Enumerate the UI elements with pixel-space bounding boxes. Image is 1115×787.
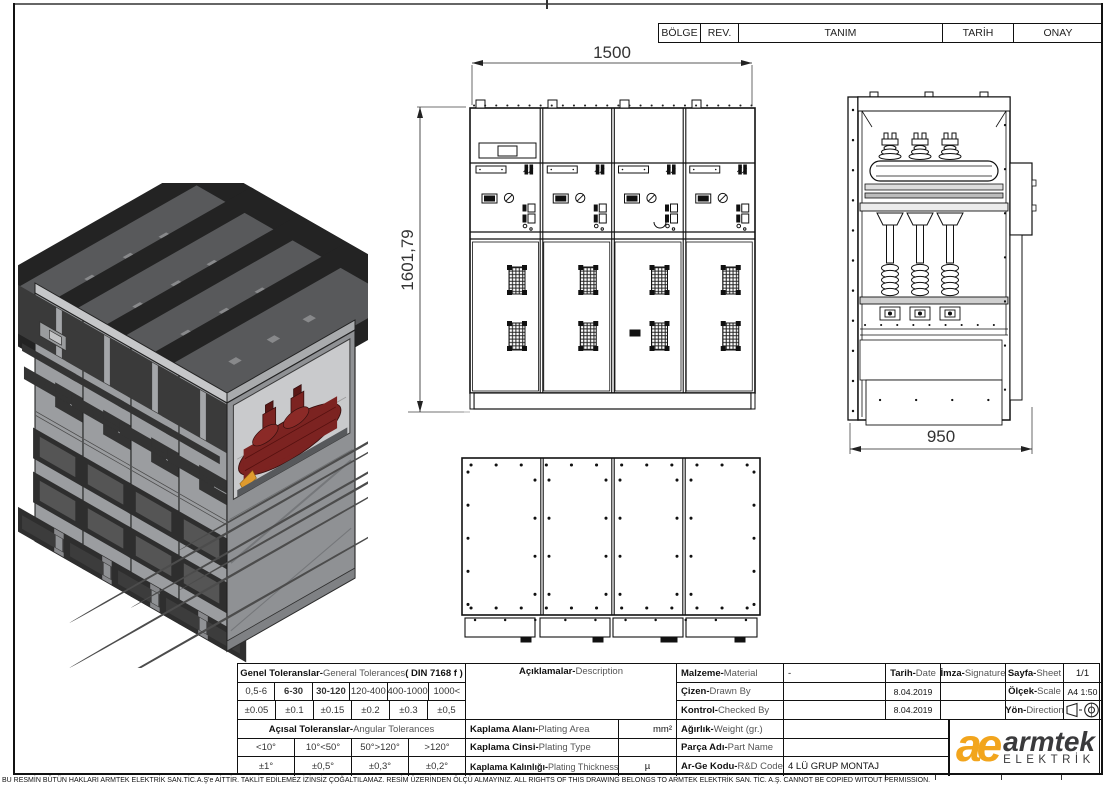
angular-tolerances-header: Açısal Toleranslar-Angular Tolerances [238,720,466,739]
plan-body [462,458,760,642]
date-label: Tarih-Date [886,664,941,683]
title-block: Genel Toleranslar-General Tolerances ( D… [237,663,1100,775]
front-width-value: 1500 [593,45,631,62]
plating-area-unit: mm² [619,720,677,739]
sheet-label: Sayfa-Sheet [1006,664,1064,683]
direction-label: Yön-Direction [1006,701,1064,720]
projection-symbol-icon [1066,702,1100,718]
plating-thickness-label: Kaplama Kalınlığı-Plating Thickness [466,757,619,776]
checked-by-label: Kontrol-Checked By [677,701,784,720]
angular-tolerance-ranges: <10° 10°<50° 50°>120° >120° [238,739,466,757]
general-tolerance-ranges: 0,5-6 6-30 30-120 120-400 400-1000 1000< [238,683,466,701]
weight-value [784,720,949,739]
armtek-logo-mark: ae [956,725,997,765]
checked-signature [941,701,1006,720]
dimension-front-width [472,60,752,105]
dimension-front-height [408,107,470,412]
scale-value: A4 1:50 [1064,683,1101,701]
material-label: Malzeme-Material [677,664,784,683]
plating-area-label: Kaplama Alanı-Plating Area [466,720,619,739]
drawn-date: 8.04.2019 [886,683,941,701]
rd-code-label: Ar-Ge Kodu-R&D Code [677,757,784,776]
isometric-view [18,183,368,668]
material-value: - [784,664,886,683]
drawn-by-value [784,683,886,701]
revision-col-tarih: TARİH [943,24,1014,42]
frame-top [14,3,1103,5]
armtek-logo-name: armtek [1003,730,1095,754]
drawn-by-label: Çizen-Drawn By [677,683,784,701]
plan-view [455,450,767,650]
front-height-value: 1601,79 [400,229,417,290]
weight-label: Ağırlık- Weight (gr.) [677,720,784,739]
frame-right [1101,3,1103,775]
revision-col-onay: ONAY [1014,24,1102,42]
part-name-label: Parça Adı-Part Name [677,739,784,757]
revision-col-bolge: BÖLGE [659,24,701,42]
front-display-panel [479,143,536,158]
copyright-notice: BU RESMİN BÜTÜN HAKLARI ARMTEK ELEKTRİK … [2,777,1114,784]
checked-by-value [784,701,886,720]
part-name-value [784,739,949,757]
plating-type-value [619,739,677,757]
revision-col-tanim: TANIM [739,24,943,42]
checked-date: 8.04.2019 [886,701,941,720]
description-block: Açıklamalar-Description [466,664,677,720]
front-view: 1500 1601,79 [400,45,770,425]
armtek-logo-sub: ELEKTRİK [1003,754,1095,767]
sheet-value: 1/1 [1064,664,1101,683]
angular-tolerance-values: ±1° ±0,5° ±0,3° ±0,2° [238,757,466,776]
side-cabinet [848,92,1036,425]
revision-table: BÖLGE REV. TANIM TARİH ONAY [658,23,1103,43]
signature-label: İmza-Signature [941,664,1006,683]
drawing-sheet: BÖLGE REV. TANIM TARİH ONAY [0,0,1115,787]
general-tolerances-header: Genel Toleranslar-General Tolerances ( D… [238,664,466,683]
general-tolerance-values: ±0.05 ±0.1 ±0.15 ±0.2 ±0.3 ±0,5 [238,701,466,720]
rd-code-value: 4 LÜ GRUP MONTAJ [784,757,949,776]
plating-type-label: Kaplama Cinsi-Plating Type [466,739,619,757]
company-logo: ae armtek ELEKTRİK [949,720,1101,776]
door-latch-mark [630,330,640,336]
side-depth-value: 950 [927,427,955,446]
frame-center-mark [546,0,548,9]
drawn-signature [941,683,1006,701]
scale-label: Ölçek-Scale [1006,683,1064,701]
side-view: 950 [840,85,1045,465]
frame-left [13,3,15,775]
direction-symbol [1064,701,1101,720]
front-cabinet [470,100,755,409]
plating-thickness-unit: µ [619,757,677,776]
revision-col-rev: REV. [701,24,739,42]
